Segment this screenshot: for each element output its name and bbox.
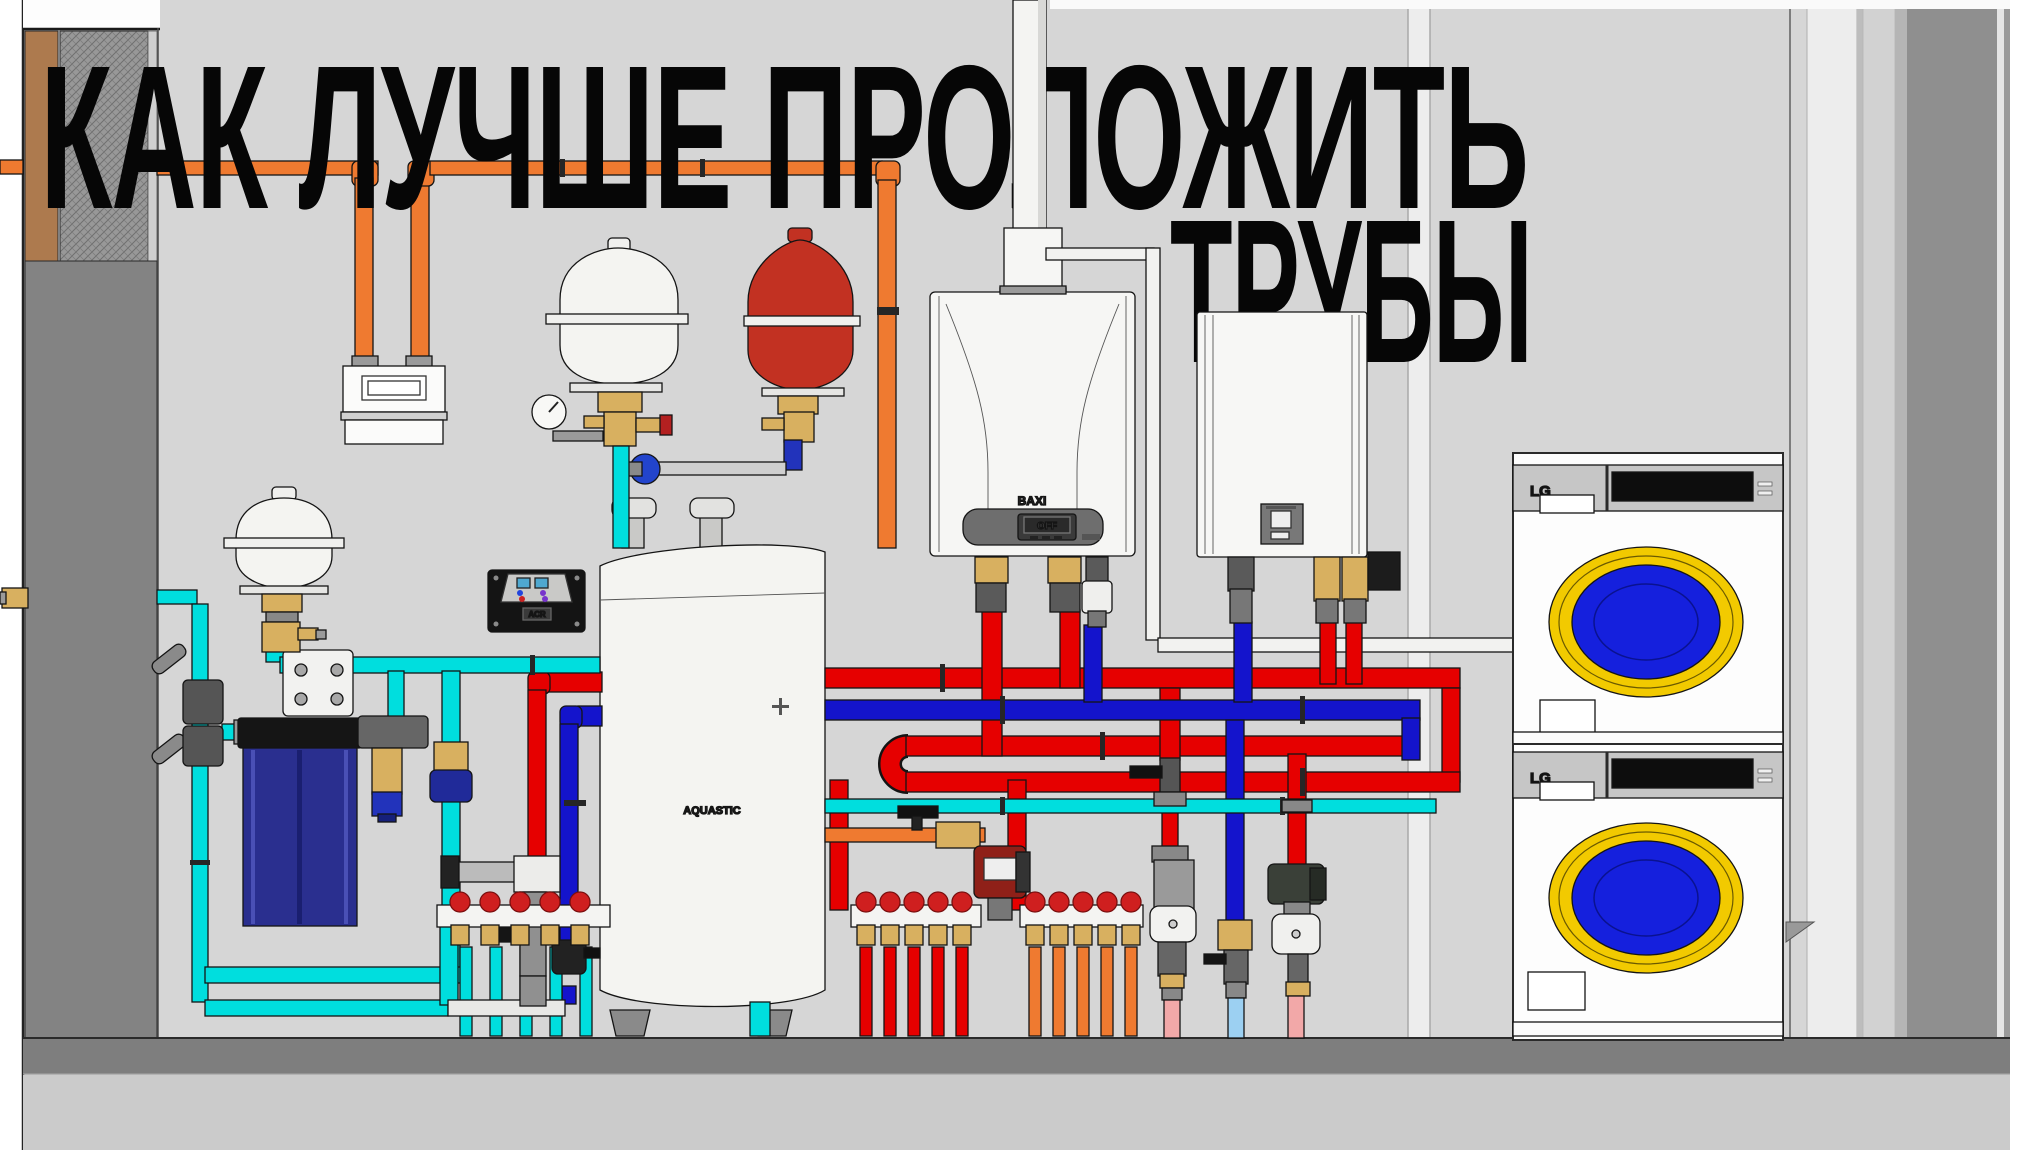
washer-button [1540, 495, 1594, 513]
washer-button [1540, 782, 1594, 800]
tank-brand-label: AQUASTIC [683, 805, 741, 817]
blue-hose [784, 440, 802, 470]
controller-display-2 [535, 578, 548, 588]
controller-display-1 [517, 578, 530, 588]
baxi-boiler: BAXI OFF [930, 286, 1135, 556]
right-dark-column [1907, 0, 1997, 1038]
condensate-pipe [1046, 248, 1154, 260]
wall-column [25, 261, 157, 1038]
boiler-brand-label: BAXI [1018, 494, 1047, 508]
gas-meter [341, 356, 447, 444]
manifold-red [851, 892, 981, 945]
boiler-room-illustration: КАК ЛУЧШЕ ПРОЛОЖИТЬ ТРУБЫ AQUASTIC [0, 0, 2033, 1150]
heating-controller: ACR [488, 570, 585, 632]
washer-display [1612, 759, 1753, 788]
gas-valve-box [1368, 552, 1400, 590]
buffer-tank: AQUASTIC [600, 498, 825, 1036]
second-boiler [1197, 312, 1367, 557]
manifold-orange [1020, 892, 1143, 945]
pressure-reducer [434, 742, 468, 772]
washer-display [1612, 472, 1753, 501]
washer-filter-door [1528, 972, 1585, 1010]
controller-label: ACR [528, 610, 546, 619]
water-inlet [0, 588, 28, 608]
washer-top: LG [1513, 453, 1783, 746]
filter-head [238, 718, 362, 748]
manifold-cyan [437, 892, 610, 945]
svg-text:OFF: OFF [1037, 521, 1057, 532]
floor [23, 1038, 2010, 1150]
washer-bottom: LG [1513, 744, 1783, 1040]
